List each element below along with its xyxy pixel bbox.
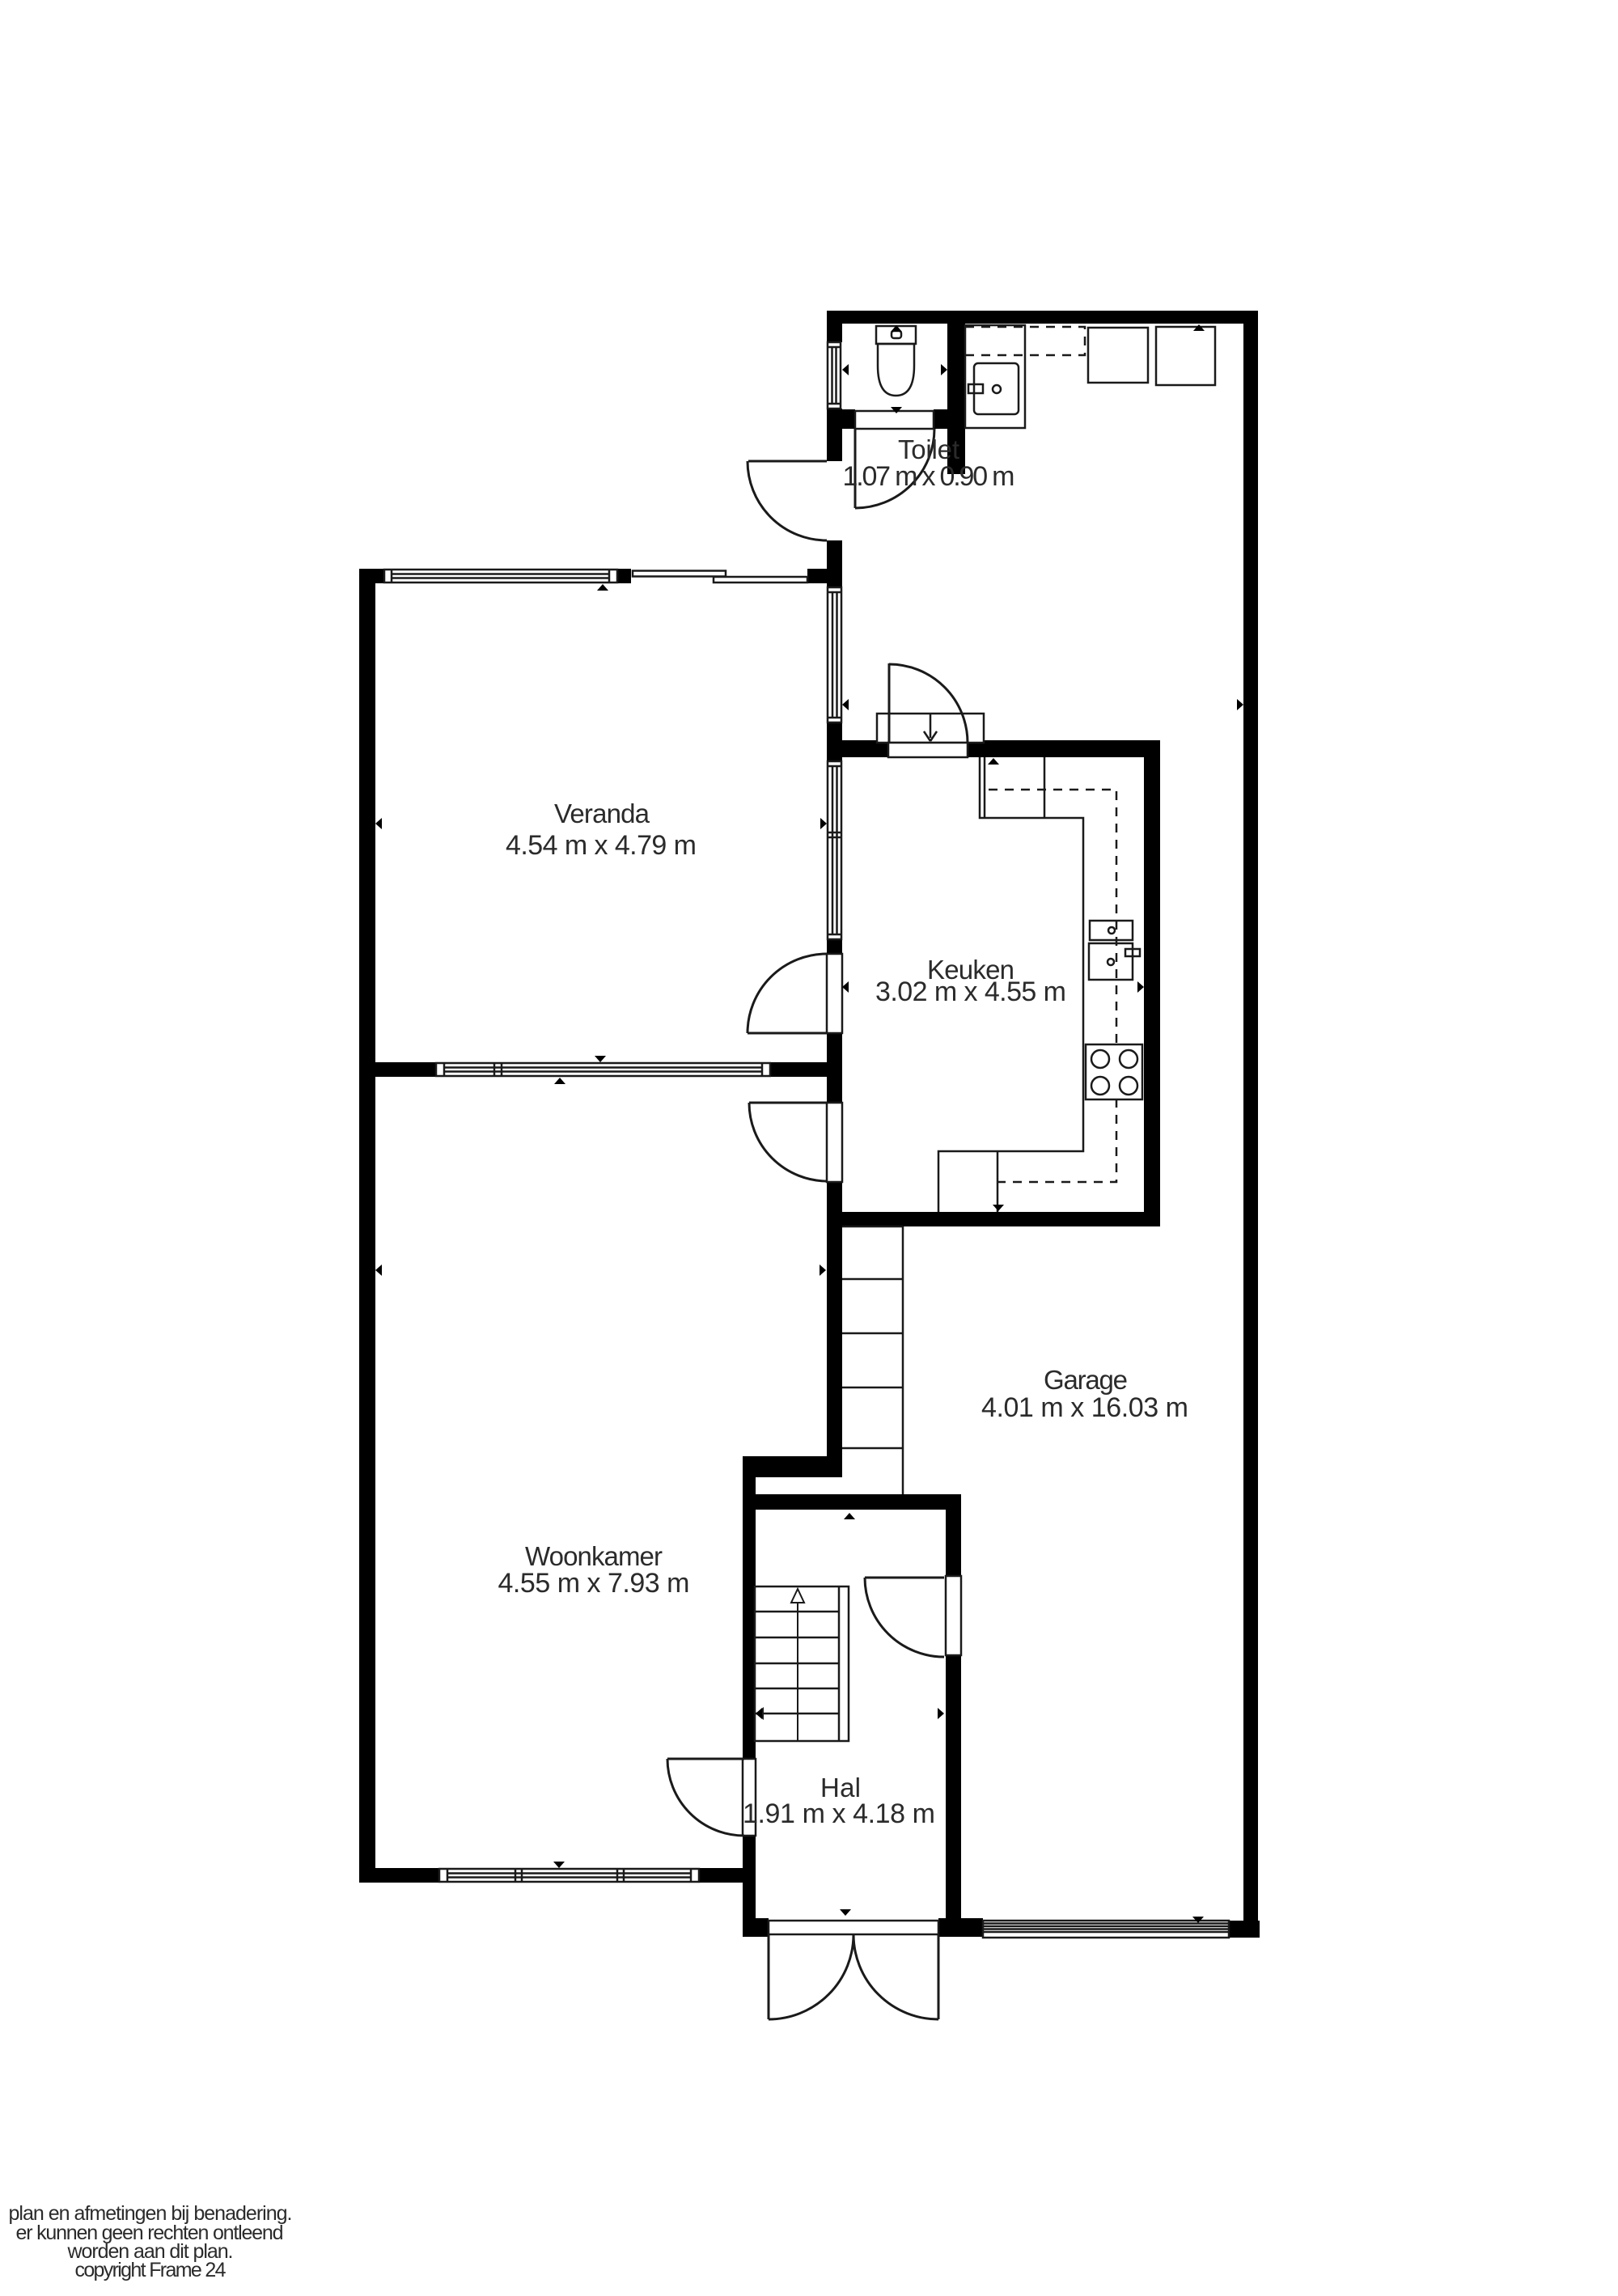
svg-text:Garage: Garage: [1044, 1365, 1128, 1395]
svg-text:1.91 m x 4.18 m: 1.91 m x 4.18 m: [743, 1798, 935, 1829]
svg-text:3.02 m x 4.55 m: 3.02 m x 4.55 m: [875, 976, 1066, 1007]
svg-text:4.55 m x 7.93 m: 4.55 m x 7.93 m: [498, 1568, 690, 1599]
svg-text:Veranda: Veranda: [554, 799, 650, 828]
svg-text:1.07 m x 0.90 m: 1.07 m x 0.90 m: [843, 461, 1015, 492]
svg-text:4.54 m x 4.79 m: 4.54 m x 4.79 m: [506, 830, 697, 861]
svg-text:copyright Frame 24: copyright Frame 24: [75, 2259, 227, 2281]
svg-text:Woonkamer: Woonkamer: [525, 1541, 663, 1571]
svg-text:Toilet: Toilet: [898, 434, 959, 464]
svg-text:4.01 m x 16.03 m: 4.01 m x 16.03 m: [981, 1392, 1188, 1423]
